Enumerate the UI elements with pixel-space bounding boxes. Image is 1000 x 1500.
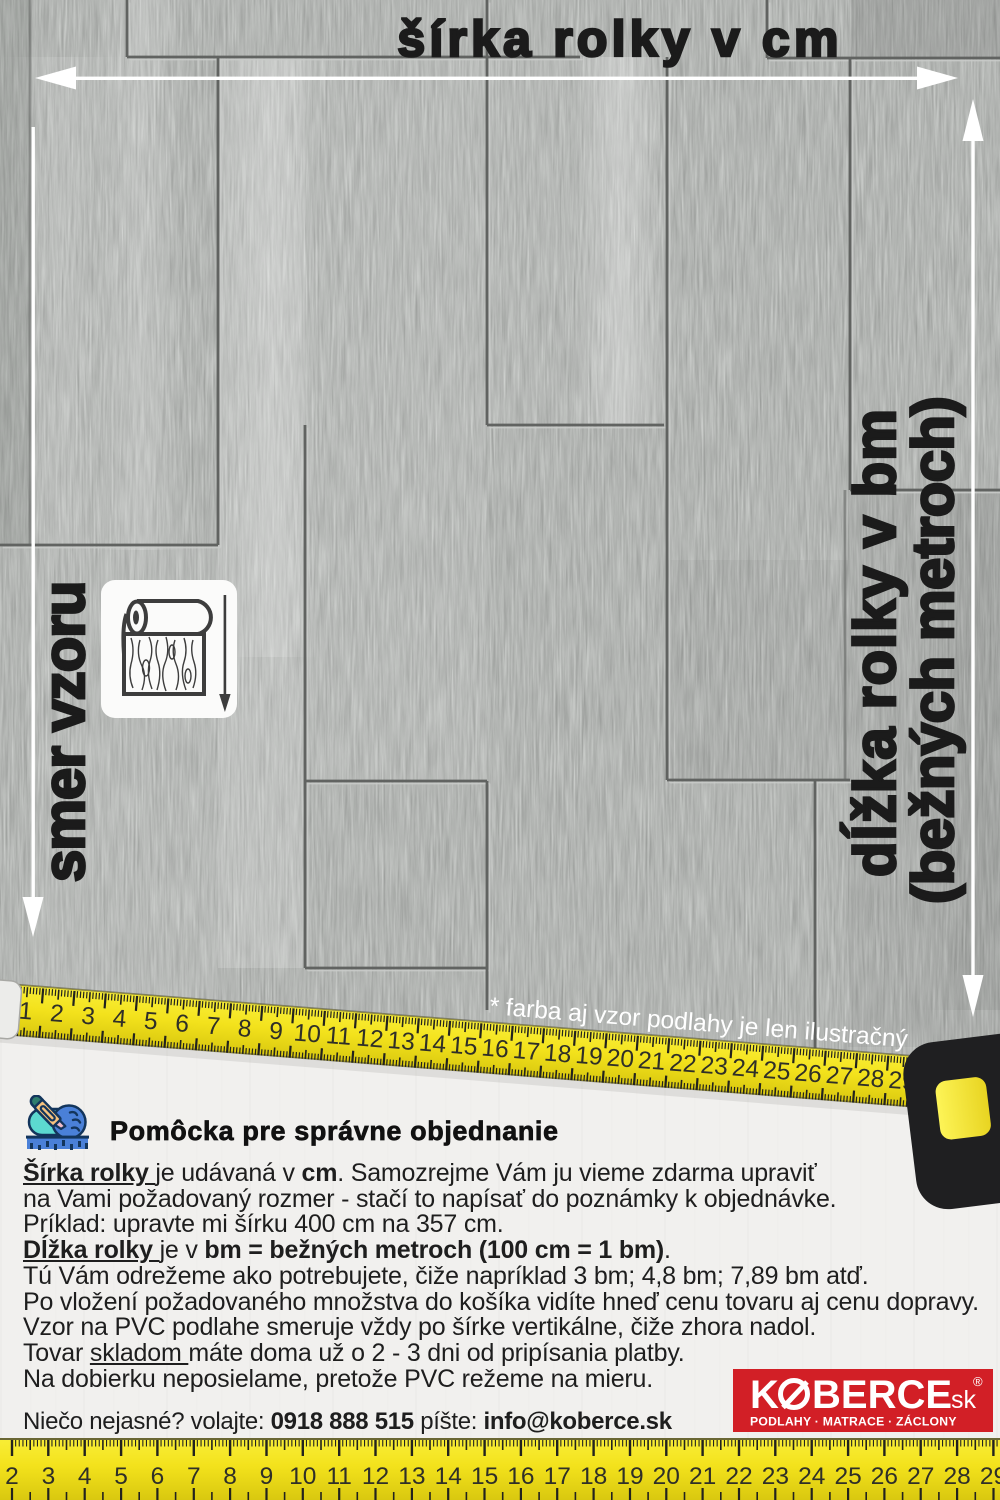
svg-text:6: 6 [174, 1010, 190, 1038]
svg-text:11: 11 [326, 1463, 351, 1490]
svg-text:3: 3 [42, 1463, 56, 1490]
svg-text:5: 5 [143, 1008, 159, 1036]
svg-text:21: 21 [689, 1463, 716, 1490]
svg-text:17: 17 [512, 1037, 541, 1066]
svg-text:®: ® [973, 1374, 983, 1389]
svg-text:9: 9 [260, 1463, 274, 1490]
svg-text:5: 5 [114, 1463, 128, 1490]
svg-text:BERCE: BERCE [812, 1373, 952, 1417]
svg-text:13: 13 [387, 1027, 416, 1056]
svg-text:12: 12 [362, 1463, 389, 1490]
svg-text:26: 26 [793, 1059, 822, 1088]
svg-text:26: 26 [871, 1463, 898, 1490]
svg-text:19: 19 [616, 1463, 643, 1490]
svg-text:.sk: .sk [944, 1386, 976, 1414]
svg-text:16: 16 [507, 1463, 534, 1490]
svg-text:8: 8 [223, 1463, 237, 1490]
svg-text:7: 7 [187, 1463, 201, 1490]
svg-text:2: 2 [5, 1463, 19, 1490]
svg-text:23: 23 [762, 1463, 789, 1490]
svg-text:16: 16 [480, 1034, 509, 1063]
svg-text:8: 8 [237, 1015, 253, 1043]
svg-text:13: 13 [398, 1463, 425, 1490]
svg-text:smer vzoru: smer vzoru [32, 582, 97, 882]
svg-text:21: 21 [637, 1047, 666, 1076]
svg-text:14: 14 [418, 1029, 447, 1058]
svg-text:20: 20 [653, 1463, 680, 1490]
svg-text:20: 20 [606, 1044, 635, 1073]
svg-text:9: 9 [268, 1018, 284, 1046]
svg-text:4: 4 [112, 1005, 128, 1033]
svg-text:4: 4 [78, 1463, 92, 1490]
svg-text:25: 25 [762, 1057, 791, 1086]
svg-text:7: 7 [206, 1013, 222, 1041]
svg-text:24: 24 [731, 1054, 760, 1083]
svg-text:22: 22 [725, 1463, 752, 1490]
svg-text:18: 18 [580, 1463, 607, 1490]
svg-text:12: 12 [355, 1024, 384, 1053]
svg-text:šírka rolky v cm: šírka rolky v cm [397, 11, 842, 67]
svg-text:25: 25 [834, 1463, 861, 1490]
svg-text:27: 27 [907, 1463, 934, 1490]
svg-text:15: 15 [449, 1032, 478, 1061]
svg-text:19: 19 [574, 1042, 603, 1071]
svg-text:18: 18 [543, 1039, 572, 1068]
svg-text:24: 24 [798, 1463, 825, 1490]
svg-text:29: 29 [980, 1463, 1000, 1490]
svg-text:11: 11 [325, 1022, 352, 1051]
svg-text:3: 3 [80, 1003, 96, 1031]
svg-text:27: 27 [825, 1062, 854, 1091]
svg-text:dĺžka rolky v bm: dĺžka rolky v bm [841, 408, 908, 877]
svg-text:(bežných metroch): (bežných metroch) [901, 397, 966, 904]
svg-text:28: 28 [943, 1463, 970, 1490]
svg-text:28: 28 [856, 1064, 885, 1093]
svg-text:23: 23 [700, 1052, 729, 1081]
svg-text:15: 15 [471, 1463, 498, 1490]
svg-text:10: 10 [289, 1463, 316, 1490]
svg-text:2: 2 [49, 1000, 65, 1028]
svg-text:10: 10 [293, 1019, 322, 1048]
svg-text:6: 6 [151, 1463, 165, 1490]
svg-text:14: 14 [435, 1463, 462, 1490]
svg-text:17: 17 [544, 1463, 571, 1490]
svg-text:22: 22 [668, 1049, 697, 1078]
svg-text:K: K [750, 1373, 779, 1417]
svg-text:PODLAHY · MATRACE · ZÁCLONY: PODLAHY · MATRACE · ZÁCLONY [750, 1414, 957, 1429]
